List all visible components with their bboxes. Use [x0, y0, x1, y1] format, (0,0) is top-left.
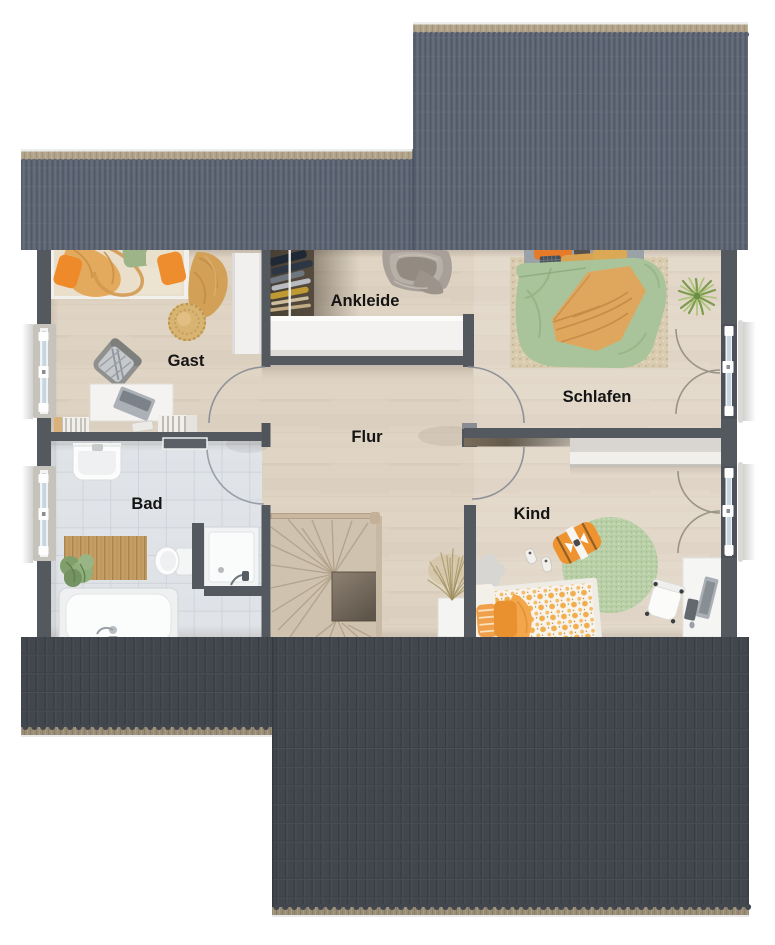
svg-text:Schlafen: Schlafen — [563, 388, 632, 406]
svg-text:Kind: Kind — [514, 505, 551, 523]
svg-text:Flur: Flur — [351, 428, 383, 446]
svg-text:Ankleide: Ankleide — [331, 292, 400, 310]
svg-text:Bad: Bad — [131, 495, 162, 513]
svg-text:Gast: Gast — [168, 352, 205, 370]
